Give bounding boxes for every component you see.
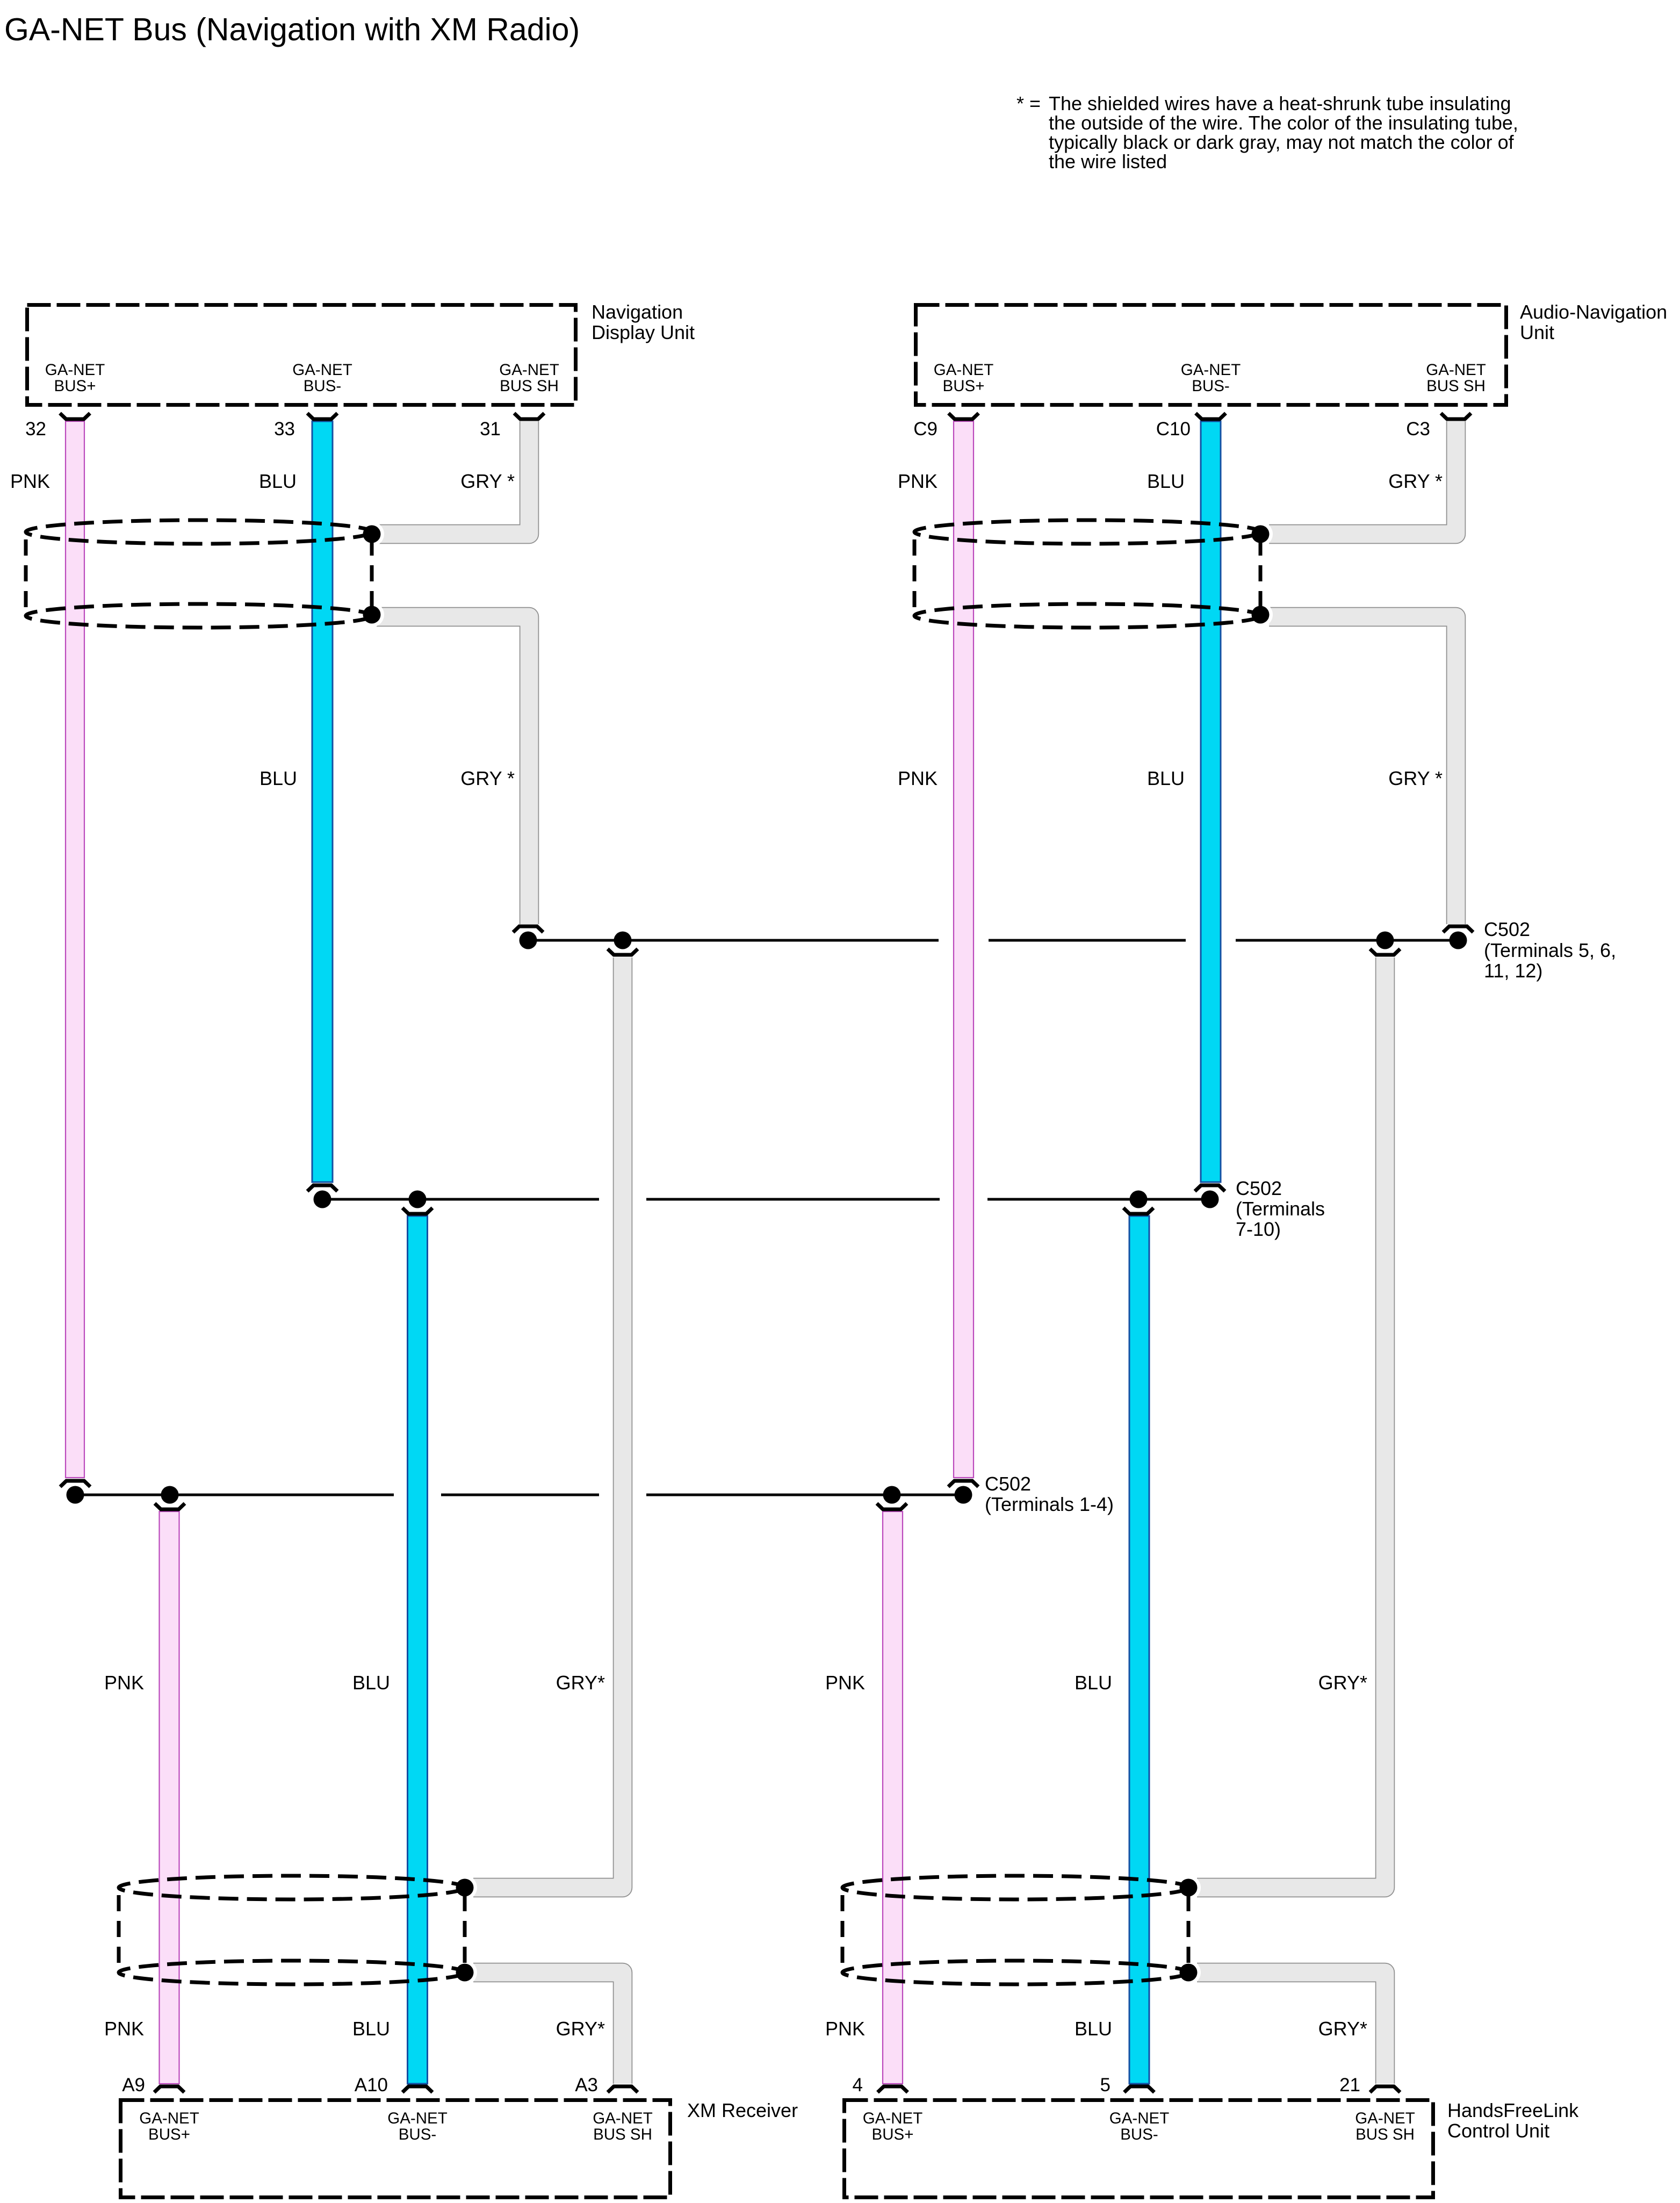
svg-text:BUS-: BUS- <box>399 2126 436 2143</box>
svg-text:31: 31 <box>480 419 501 440</box>
svg-text:GA-NET: GA-NET <box>1426 361 1486 379</box>
svg-text:HandsFreeLink: HandsFreeLink <box>1447 2099 1579 2121</box>
svg-text:GRY *: GRY * <box>460 470 515 492</box>
svg-text:BUS SH: BUS SH <box>593 2126 652 2143</box>
svg-text:BUS SH: BUS SH <box>500 377 559 395</box>
svg-text:C502: C502 <box>1236 1177 1282 1199</box>
svg-text:GA-NET: GA-NET <box>292 361 352 379</box>
svg-text:GA-NET: GA-NET <box>1181 361 1241 379</box>
svg-text:BUS-: BUS- <box>1120 2126 1158 2143</box>
svg-text:BUS SH: BUS SH <box>1355 2126 1415 2143</box>
svg-text:C502: C502 <box>985 1473 1031 1495</box>
svg-text:BLU: BLU <box>1075 1672 1112 1694</box>
svg-text:typically black or dark gray,: typically black or dark gray, may not ma… <box>1049 131 1515 153</box>
svg-text:A10: A10 <box>355 2075 388 2096</box>
svg-text:PNK: PNK <box>10 470 50 492</box>
svg-text:BLU: BLU <box>1075 2018 1112 2040</box>
svg-text:BUS+: BUS+ <box>148 2126 190 2143</box>
svg-text:A3: A3 <box>575 2075 598 2096</box>
svg-text:GA-NET: GA-NET <box>139 2110 199 2127</box>
svg-text:Display Unit: Display Unit <box>592 321 695 343</box>
svg-text:GA-NET: GA-NET <box>1355 2110 1415 2127</box>
svg-text:32: 32 <box>25 419 46 440</box>
svg-text:BUS+: BUS+ <box>872 2126 914 2143</box>
svg-text:Audio-Navigation: Audio-Navigation <box>1520 301 1667 323</box>
svg-text:Unit: Unit <box>1520 321 1554 343</box>
svg-text:* =: * = <box>1016 92 1041 114</box>
svg-text:BUS+: BUS+ <box>943 377 985 395</box>
svg-text:C502: C502 <box>1484 918 1530 940</box>
svg-text:GRY *: GRY * <box>1388 470 1443 492</box>
svg-text:BLU: BLU <box>1147 470 1185 492</box>
svg-text:GRY*: GRY* <box>556 1672 605 1694</box>
svg-text:GRY *: GRY * <box>1388 767 1443 789</box>
svg-text:PNK: PNK <box>825 2018 865 2040</box>
svg-text:PNK: PNK <box>104 2018 144 2040</box>
svg-text:GA-NET: GA-NET <box>863 2110 922 2127</box>
svg-text:11, 12): 11, 12) <box>1484 960 1542 982</box>
svg-text:GRY*: GRY* <box>556 2018 605 2040</box>
svg-text:Navigation: Navigation <box>592 301 683 323</box>
svg-text:7-10): 7-10) <box>1236 1218 1281 1240</box>
svg-text:21: 21 <box>1339 2075 1360 2096</box>
svg-text:BLU: BLU <box>352 2018 390 2040</box>
svg-text:C10: C10 <box>1156 419 1191 440</box>
svg-text:(Terminals 5, 6,: (Terminals 5, 6, <box>1484 939 1616 961</box>
svg-text:PNK: PNK <box>825 1672 865 1694</box>
svg-text:XM Receiver: XM Receiver <box>687 2099 798 2121</box>
svg-text:A9: A9 <box>122 2075 145 2096</box>
svg-text:GA-NET: GA-NET <box>499 361 559 379</box>
svg-text:the wire listed: the wire listed <box>1049 150 1167 172</box>
svg-text:PNK: PNK <box>898 470 938 492</box>
svg-text:BUS-: BUS- <box>304 377 341 395</box>
svg-text:GRY*: GRY* <box>1318 2018 1367 2040</box>
svg-text:GRY*: GRY* <box>1318 1672 1367 1694</box>
svg-text:(Terminals: (Terminals <box>1236 1198 1325 1220</box>
svg-text:BUS+: BUS+ <box>54 377 96 395</box>
svg-text:C3: C3 <box>1406 419 1430 440</box>
svg-text:GA-NET: GA-NET <box>593 2110 652 2127</box>
svg-text:BLU: BLU <box>259 470 297 492</box>
svg-text:Control Unit: Control Unit <box>1447 2120 1549 2142</box>
svg-text:BLU: BLU <box>259 767 297 789</box>
svg-text:(Terminals 1-4): (Terminals 1-4) <box>985 1493 1114 1515</box>
svg-text:GA-NET: GA-NET <box>1109 2110 1169 2127</box>
svg-text:GA-NET Bus (Navigation with XM: GA-NET Bus (Navigation with XM Radio) <box>4 12 580 47</box>
svg-text:the outside of the wire. The c: the outside of the wire. The color of th… <box>1049 112 1518 134</box>
svg-text:GRY *: GRY * <box>460 767 515 789</box>
svg-text:BLU: BLU <box>352 1672 390 1694</box>
svg-text:PNK: PNK <box>104 1672 144 1694</box>
svg-text:C9: C9 <box>913 419 938 440</box>
svg-text:The shielded wires have a heat: The shielded wires have a heat-shrunk tu… <box>1049 92 1511 114</box>
svg-text:GA-NET: GA-NET <box>387 2110 447 2127</box>
svg-text:BUS-: BUS- <box>1192 377 1229 395</box>
svg-text:4: 4 <box>853 2075 863 2096</box>
svg-text:GA-NET: GA-NET <box>934 361 993 379</box>
svg-text:BUS SH: BUS SH <box>1426 377 1486 395</box>
svg-text:BLU: BLU <box>1147 767 1185 789</box>
svg-text:PNK: PNK <box>898 767 938 789</box>
svg-text:5: 5 <box>1100 2075 1111 2096</box>
svg-text:33: 33 <box>274 419 295 440</box>
svg-text:GA-NET: GA-NET <box>45 361 105 379</box>
